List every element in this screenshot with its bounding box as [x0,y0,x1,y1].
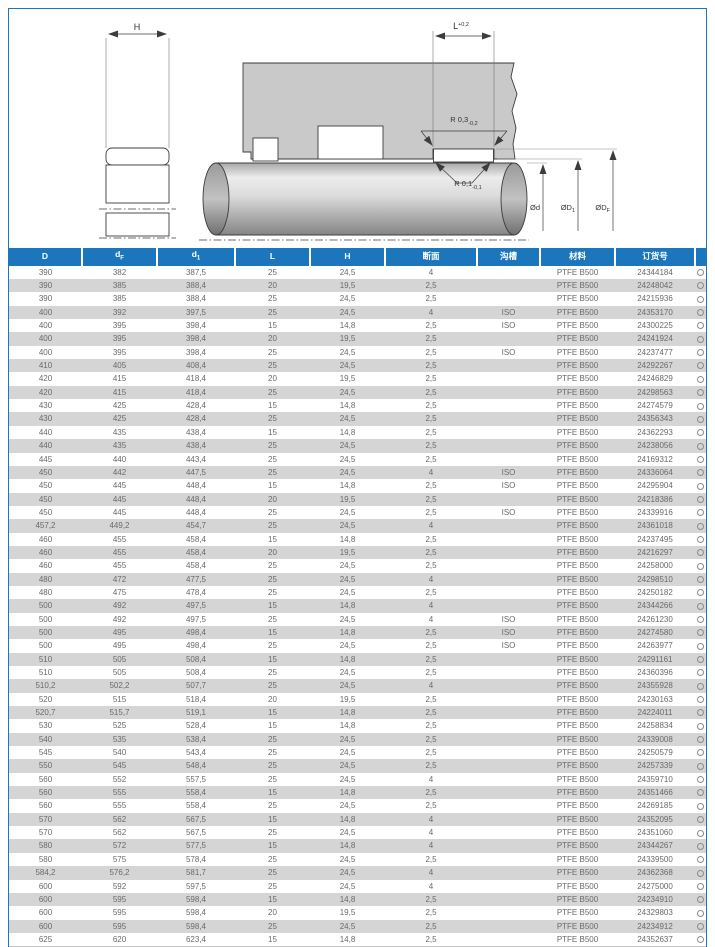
dimension-table: DdFd1LH断面沟槽材料订货号 390382387,52524,54PTFE … [9,248,706,947]
table-cell: PTFE B500 [540,506,615,519]
diameter-d-label: Ød [530,203,540,212]
table-cell: 538,4 [157,733,235,746]
availability-circle-icon [697,883,704,890]
table-cell: 500 [9,639,82,652]
table-cell: 390 [9,279,82,292]
table-cell [477,786,540,799]
table-cell [477,559,540,572]
table-cell [477,359,540,372]
table-cell: 4 [385,573,477,586]
table-cell: 24,5 [310,866,385,879]
table-cell: 20 [235,372,310,385]
table-row: 550545548,42524,52,5PTFE B50024257339 [9,759,706,772]
table-cell: ISO [477,466,540,479]
availability-cell [695,759,706,772]
table-cell: 398,4 [157,346,235,359]
table-cell: ISO [477,639,540,652]
availability-circle-icon [697,669,704,676]
availability-cell [695,706,706,719]
availability-circle-icon [697,749,704,756]
availability-circle-icon [697,296,704,303]
table-row: 390382387,52524,54PTFE B50024344184 [9,266,706,279]
table-cell: 600 [9,906,82,919]
table-cell: 15 [235,839,310,852]
availability-cell [695,426,706,439]
table-cell: PTFE B500 [540,426,615,439]
table-cell [477,906,540,919]
availability-cell [695,439,706,452]
table-cell: 440 [82,453,157,466]
table-cell: 2,5 [385,439,477,452]
table-cell: PTFE B500 [540,920,615,933]
table-cell: 24257339 [615,759,695,772]
table-cell: 448,4 [157,479,235,492]
table-cell: 2,5 [385,559,477,572]
table-cell: 398,4 [157,319,235,332]
table-cell: 20 [235,546,310,559]
column-header-dF: dF [82,248,157,266]
table-row: 457,2449,2454,72524,54PTFE B50024361018 [9,519,706,532]
table-cell: 548,4 [157,759,235,772]
availability-cell [695,626,706,639]
table-cell: 24,5 [310,466,385,479]
table-cell: 24,5 [310,386,385,399]
table-cell: 2,5 [385,706,477,719]
table-cell: 557,5 [157,773,235,786]
availability-cell [695,639,706,652]
table-cell: 560 [9,799,82,812]
table-cell: 595 [82,920,157,933]
availability-circle-icon [697,336,704,343]
table-cell: 25 [235,559,310,572]
table-cell: 25 [235,466,310,479]
availability-circle-icon [697,429,704,436]
availability-cell [695,319,706,332]
table-cell [477,920,540,933]
table-cell: 25 [235,880,310,893]
header-row: DdFd1LH断面沟槽材料订货号 [9,248,706,266]
availability-cell [695,853,706,866]
table-cell: 24339500 [615,853,695,866]
availability-circle-icon [697,349,704,356]
table-cell: 395 [82,346,157,359]
table-cell: 25 [235,759,310,772]
table-cell: 2,5 [385,933,477,947]
table-cell: 24359710 [615,773,695,786]
table-cell: ISO [477,319,540,332]
table-cell: 4 [385,519,477,532]
table-row: 430425428,42524,52,5PTFE B50024356343 [9,412,706,425]
table-cell: 519,1 [157,706,235,719]
table-cell: 20 [235,693,310,706]
table-cell: 567,5 [157,813,235,826]
table-cell: 500 [9,626,82,639]
availability-circle-icon [697,576,704,583]
availability-cell [695,746,706,759]
table-cell: 2,5 [385,853,477,866]
column-header-d1: d1 [157,248,235,266]
table-cell: 520 [9,693,82,706]
table-cell: 24,5 [310,746,385,759]
table-cell: 2,5 [385,799,477,812]
table-cell: 24351060 [615,826,695,839]
table-cell: 420 [9,386,82,399]
table-cell: PTFE B500 [540,719,615,732]
table-cell: 24237477 [615,346,695,359]
table-cell: PTFE B500 [540,573,615,586]
table-row: 600595598,41514,82,5PTFE B50024234910 [9,893,706,906]
table-row: 570562567,51514,84PTFE B50024352095 [9,813,706,826]
table-cell: 24336064 [615,466,695,479]
table-cell: PTFE B500 [540,359,615,372]
table-cell [477,706,540,719]
table-cell: 428,4 [157,412,235,425]
availability-cell [695,880,706,893]
table-cell: PTFE B500 [540,412,615,425]
table-cell: 24,5 [310,759,385,772]
availability-circle-icon [697,483,704,490]
table-cell: 24300225 [615,319,695,332]
table-row: 445440443,42524,52,5PTFE B50024169312 [9,453,706,466]
table-cell: 497,5 [157,599,235,612]
table-row: 625620623,41514,82,5PTFE B50024352637 [9,933,706,947]
table-cell: 25 [235,519,310,532]
availability-cell [695,866,706,879]
table-row: 510505508,42524,52,5PTFE B50024360396 [9,666,706,679]
table-cell: 19,5 [310,332,385,345]
table-row: 450445448,42019,52,5PTFE B50024218386 [9,493,706,506]
table-cell: 24,5 [310,920,385,933]
table-cell: 495 [82,626,157,639]
table-cell: 25 [235,733,310,746]
table-cell: 2,5 [385,733,477,746]
table-cell: 445 [9,453,82,466]
table-cell: 528,4 [157,719,235,732]
table-cell: 14,8 [310,786,385,799]
table-cell: ISO [477,613,540,626]
table-cell: 25 [235,639,310,652]
availability-circle-icon [697,709,704,716]
table-cell [477,573,540,586]
table-cell: PTFE B500 [540,880,615,893]
table-row: 460455458,42524,52,5PTFE B50024258000 [9,559,706,572]
table-cell [477,332,540,345]
table-cell: 552 [82,773,157,786]
table-cell: 15 [235,479,310,492]
table-cell: 25 [235,266,310,279]
table-cell: 24230163 [615,693,695,706]
installed-seal [434,149,494,162]
table-row: 440435438,42524,52,5PTFE B50024238056 [9,439,706,452]
table-cell: 19,5 [310,279,385,292]
availability-circle-icon [697,643,704,650]
table-cell: 24224011 [615,706,695,719]
availability-circle-icon [697,856,704,863]
table-cell: 2,5 [385,479,477,492]
table-cell: 515,7 [82,706,157,719]
availability-cell [695,666,706,679]
table-cell: 24,5 [310,679,385,692]
table-row: 560552557,52524,54PTFE B50024359710 [9,773,706,786]
availability-circle-icon [697,309,704,316]
table-row: 400395398,41514,82,5ISOPTFE B50024300225 [9,319,706,332]
table-cell: 14,8 [310,839,385,852]
table-cell: 14,8 [310,426,385,439]
table-cell: PTFE B500 [540,799,615,812]
table-cell: 438,4 [157,439,235,452]
table-cell: 442 [82,466,157,479]
table-cell: 24,5 [310,799,385,812]
table-cell: 455 [82,533,157,546]
table-cell: 597,5 [157,880,235,893]
table-cell: 495 [82,639,157,652]
table-cell [477,839,540,852]
table-cell: 20 [235,906,310,919]
table-cell: 508,4 [157,666,235,679]
availability-circle-icon [697,549,704,556]
table-row: 400395398,42524,52,5ISOPTFE B50024237477 [9,346,706,359]
table-cell: 418,4 [157,386,235,399]
table-cell: 24,5 [310,880,385,893]
table-cell: 540 [82,746,157,759]
availability-cell [695,719,706,732]
table-cell: 510 [9,666,82,679]
table-cell: 600 [9,893,82,906]
availability-cell [695,359,706,372]
table-cell: 24292267 [615,359,695,372]
table-cell: 24234910 [615,893,695,906]
catalog-page: H [0,0,715,947]
table-cell: 24246829 [615,372,695,385]
table-cell: 25 [235,453,310,466]
table-cell: PTFE B500 [540,466,615,479]
seal-cross-section-view [99,34,176,238]
availability-circle-icon [697,923,704,930]
availability-circle-icon [697,656,704,663]
availability-circle-icon [697,282,704,289]
table-cell: 392 [82,306,157,319]
table-row: 600595598,42019,52,5PTFE B50024329803 [9,906,706,919]
table-cell: 19,5 [310,372,385,385]
table-cell: 24,5 [310,733,385,746]
table-cell: 14,8 [310,813,385,826]
table-cell [477,826,540,839]
availability-cell [695,813,706,826]
table-row: 430425428,41514,82,5PTFE B50024274579 [9,399,706,412]
table-cell [477,880,540,893]
table-cell: 480 [9,573,82,586]
table-cell: 4 [385,466,477,479]
table-cell: 24,5 [310,639,385,652]
table-cell [477,586,540,599]
table-cell: 525 [82,719,157,732]
table-body: 390382387,52524,54PTFE B5002434418439038… [9,266,706,947]
table-row: 500495498,42524,52,5ISOPTFE B50024263977 [9,639,706,652]
table-cell: 19,5 [310,906,385,919]
table-cell: 2,5 [385,693,477,706]
table-cell: PTFE B500 [540,559,615,572]
table-cell: 2,5 [385,920,477,933]
table-cell [477,493,540,506]
table-cell: 492 [82,599,157,612]
availability-cell [695,826,706,839]
table-cell: 543,4 [157,746,235,759]
table-cell: PTFE B500 [540,733,615,746]
table-cell: 460 [9,559,82,572]
table-cell: 20 [235,493,310,506]
table-cell: 25 [235,866,310,879]
table-cell: 15 [235,533,310,546]
table-cell: 24234912 [615,920,695,933]
table-row: 545540543,42524,52,5PTFE B50024250579 [9,746,706,759]
availability-circle-icon [697,523,704,530]
column-header-groove: 沟槽 [477,248,540,266]
table-cell: PTFE B500 [540,386,615,399]
table-cell: 24298510 [615,573,695,586]
table-cell: 24,5 [310,439,385,452]
table-cell [477,866,540,879]
table-cell: 448,4 [157,506,235,519]
table-cell: 505 [82,666,157,679]
availability-circle-icon [697,910,704,917]
table-cell: 24,5 [310,412,385,425]
table-cell: PTFE B500 [540,786,615,799]
table-cell: 2,5 [385,346,477,359]
table-cell: 24,5 [310,773,385,786]
table-cell: 562 [82,813,157,826]
table-cell [477,653,540,666]
table-cell: 2,5 [385,399,477,412]
table-cell: ISO [477,626,540,639]
table-cell: 581,7 [157,866,235,879]
diameter-df-label: ØDF [595,203,610,214]
table-cell: 15 [235,706,310,719]
table-cell: 447,5 [157,466,235,479]
table-cell: 2,5 [385,546,477,559]
table-row: 400392397,52524,54ISOPTFE B50024353170 [9,306,706,319]
availability-cell [695,693,706,706]
table-cell: 2,5 [385,719,477,732]
table-cell: 24,5 [310,346,385,359]
table-cell: 2,5 [385,666,477,679]
table-cell: 15 [235,653,310,666]
table-cell: 398,4 [157,332,235,345]
availability-cell [695,799,706,812]
table-cell: 15 [235,599,310,612]
availability-circle-icon [697,322,704,329]
table-cell: PTFE B500 [540,346,615,359]
table-row: 450442447,52524,54ISOPTFE B50024336064 [9,466,706,479]
table-cell: PTFE B500 [540,906,615,919]
table-cell: 24258834 [615,719,695,732]
table-cell: 595 [82,906,157,919]
table-cell: 2,5 [385,279,477,292]
table-cell: 15 [235,626,310,639]
table-cell: 600 [9,920,82,933]
table-cell: 24250182 [615,586,695,599]
table-cell [477,679,540,692]
table-cell: 24275000 [615,880,695,893]
table-cell: PTFE B500 [540,332,615,345]
table-cell: 4 [385,266,477,279]
availability-circle-icon [697,616,704,623]
table-cell [477,292,540,305]
table-cell: 510 [9,653,82,666]
table-cell: 14,8 [310,719,385,732]
table-cell: 24362368 [615,866,695,879]
table-cell [477,412,540,425]
availability-cell [695,773,706,786]
table-cell: 498,4 [157,639,235,652]
table-cell: 518,4 [157,693,235,706]
table-cell: 387,5 [157,266,235,279]
table-cell: PTFE B500 [540,759,615,772]
table-cell: 460 [9,533,82,546]
table-cell: 25 [235,292,310,305]
availability-cell [695,386,706,399]
table-cell: 472 [82,573,157,586]
table-cell: 2,5 [385,453,477,466]
table-cell: 577,5 [157,839,235,852]
table-cell: 4 [385,880,477,893]
table-cell: PTFE B500 [540,893,615,906]
availability-cell [695,586,706,599]
table-row: 520,7515,7519,11514,82,5PTFE B5002422401… [9,706,706,719]
table-row: 500495498,41514,82,5ISOPTFE B50024274580 [9,626,706,639]
table-cell: 2,5 [385,319,477,332]
table-cell: 438,4 [157,426,235,439]
table-cell: 25 [235,506,310,519]
availability-circle-icon [697,536,704,543]
availability-cell [695,453,706,466]
table-cell: 598,4 [157,920,235,933]
table-cell: PTFE B500 [540,826,615,839]
availability-cell [695,559,706,572]
table-cell: 395 [82,319,157,332]
table-cell: 24,5 [310,519,385,532]
availability-circle-icon [697,589,704,596]
table-cell: 460 [9,546,82,559]
table-cell: 2,5 [385,906,477,919]
table-cell: 2,5 [385,386,477,399]
availability-circle-icon [697,723,704,730]
table-cell: PTFE B500 [540,613,615,626]
table-cell: 25 [235,439,310,452]
table-cell: PTFE B500 [540,586,615,599]
table-cell: 24169312 [615,453,695,466]
availability-circle-icon [697,389,704,396]
table-cell: PTFE B500 [540,372,615,385]
availability-cell [695,906,706,919]
table-cell: 430 [9,399,82,412]
table-cell: PTFE B500 [540,853,615,866]
table-cell [477,693,540,706]
table-cell: 24344266 [615,599,695,612]
availability-circle-icon [697,803,704,810]
table-cell: 502,2 [82,679,157,692]
table-cell: 25 [235,359,310,372]
table-cell: 458,4 [157,546,235,559]
table-cell: 15 [235,426,310,439]
table-cell: PTFE B500 [540,519,615,532]
table-cell: 25 [235,799,310,812]
table-cell: 19,5 [310,546,385,559]
table-cell: 24,5 [310,586,385,599]
table-cell: 24361018 [615,519,695,532]
table-cell: 510,2 [9,679,82,692]
table-cell: 14,8 [310,933,385,947]
table-cell: 25 [235,773,310,786]
